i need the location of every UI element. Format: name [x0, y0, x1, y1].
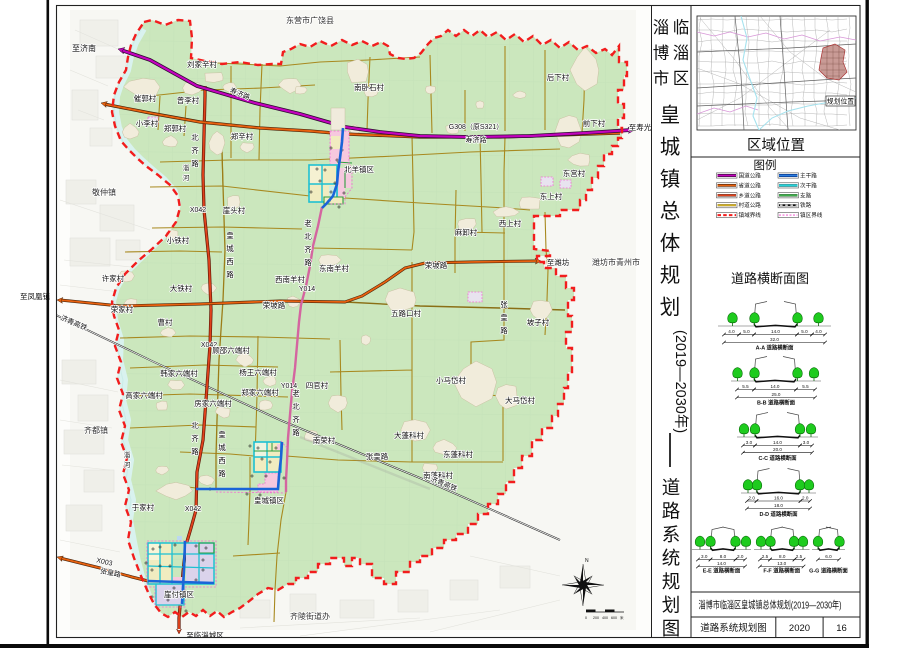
- svg-text:东宫村: 东宫村: [563, 168, 586, 178]
- svg-text:城: 城: [218, 443, 226, 452]
- svg-text:荣坡路: 荣坡路: [425, 260, 448, 270]
- svg-text:200: 200: [593, 616, 599, 620]
- svg-text:寿济路: 寿济路: [466, 135, 487, 144]
- svg-text:2.5: 2.5: [796, 554, 803, 559]
- svg-text:主干路: 主干路: [800, 172, 817, 180]
- svg-text:5.0: 5.0: [743, 329, 750, 334]
- svg-text:许家村: 许家村: [102, 273, 125, 283]
- svg-text:小李村: 小李村: [136, 118, 159, 128]
- svg-text:区: 区: [673, 70, 690, 88]
- svg-text:统: 统: [662, 548, 681, 569]
- svg-text:规: 规: [662, 571, 681, 592]
- svg-text:B-B 道路横断面: B-B 道路横断面: [757, 399, 796, 407]
- svg-text:荣家村: 荣家村: [111, 304, 134, 314]
- svg-text:路: 路: [662, 501, 681, 522]
- svg-text:齐: 齐: [292, 414, 300, 424]
- svg-text:郑郭村: 郑郭村: [164, 123, 187, 133]
- svg-text:Y014: Y014: [299, 286, 315, 293]
- svg-text:3.0: 3.0: [803, 440, 810, 445]
- svg-text:韩家六端村: 韩家六端村: [160, 368, 198, 378]
- svg-text:省道公路: 省道公路: [739, 181, 762, 189]
- svg-text:东蓬科村: 东蓬科村: [443, 449, 473, 459]
- svg-text:道: 道: [662, 477, 681, 498]
- svg-text:400: 400: [602, 616, 608, 620]
- svg-text:至潍坊: 至潍坊: [547, 257, 570, 267]
- svg-text:皇: 皇: [226, 230, 234, 240]
- svg-text:城: 城: [660, 136, 681, 159]
- svg-text:路: 路: [304, 257, 312, 267]
- svg-text:西南羊村: 西南羊村: [275, 274, 305, 284]
- svg-text:皇: 皇: [660, 104, 681, 127]
- svg-text:3.0: 3.0: [701, 554, 708, 559]
- svg-text:北: 北: [191, 421, 199, 430]
- svg-text:西: 西: [226, 257, 234, 266]
- svg-text:路: 路: [500, 325, 508, 335]
- svg-text:4.0: 4.0: [728, 329, 735, 334]
- svg-text:五路口村: 五路口村: [391, 308, 421, 318]
- svg-text:村道公路: 村道公路: [739, 201, 762, 209]
- svg-text:米: 米: [620, 615, 624, 620]
- svg-text:F-F 道路横断面: F-F 道路横断面: [763, 567, 800, 575]
- svg-text:顾邵六端村: 顾邵六端村: [212, 345, 250, 355]
- svg-text:河: 河: [124, 461, 131, 469]
- svg-text:规划位置: 规划位置: [827, 97, 854, 106]
- svg-text:图例: 图例: [754, 158, 777, 172]
- svg-text:皇: 皇: [218, 429, 226, 439]
- svg-text:齐陵街道办: 齐陵街道办: [290, 611, 330, 621]
- svg-text:系: 系: [662, 524, 681, 545]
- svg-text:崖付镇区: 崖付镇区: [164, 589, 194, 599]
- svg-text:区域位置: 区域位置: [747, 137, 805, 154]
- svg-text:南荣村: 南荣村: [313, 435, 336, 445]
- svg-text:大铁村: 大铁村: [170, 283, 193, 293]
- svg-text:18.0: 18.0: [774, 503, 783, 508]
- svg-text:坡子村: 坡子村: [527, 317, 550, 327]
- svg-text:G-G 道路横断面: G-G 道路横断面: [809, 567, 848, 575]
- svg-text:荣坡路: 荣坡路: [263, 300, 286, 310]
- svg-text:3.0: 3.0: [746, 440, 753, 445]
- svg-text:2.5: 2.5: [762, 554, 769, 559]
- svg-text:2020: 2020: [789, 623, 810, 634]
- svg-text:至济南: 至济南: [72, 43, 96, 53]
- svg-text:淄: 淄: [183, 163, 190, 172]
- svg-text:25.0: 25.0: [772, 392, 781, 397]
- svg-text:后下村: 后下村: [547, 72, 570, 82]
- svg-text:路: 路: [292, 427, 300, 437]
- svg-text:临: 临: [673, 18, 690, 37]
- svg-text:北: 北: [191, 133, 199, 142]
- svg-text:6.0: 6.0: [825, 554, 832, 559]
- svg-text:路: 路: [218, 468, 226, 478]
- svg-text:小马岱村: 小马岱村: [436, 375, 466, 385]
- svg-text:13.0: 13.0: [777, 561, 786, 566]
- svg-text:X042: X042: [185, 506, 201, 513]
- svg-text:刘家辛村: 刘家辛村: [187, 59, 217, 69]
- svg-text:高家六端村: 高家六端村: [125, 390, 163, 400]
- svg-text:14.0: 14.0: [771, 384, 780, 389]
- svg-text:规: 规: [660, 264, 681, 287]
- svg-text:北羊镇区: 北羊镇区: [344, 164, 374, 174]
- svg-text:西: 西: [218, 456, 226, 465]
- svg-text:老: 老: [292, 388, 300, 398]
- svg-text:G308（原S321）: G308（原S321）: [449, 123, 503, 131]
- svg-text:博: 博: [653, 44, 670, 63]
- svg-text:杨王六端村: 杨王六端村: [239, 367, 277, 377]
- svg-text:潍坊市青州市: 潍坊市青州市: [592, 257, 640, 267]
- svg-text:E-E 道路横断面: E-E 道路横断面: [703, 567, 741, 575]
- svg-text:20.0: 20.0: [773, 447, 782, 452]
- svg-text:市: 市: [653, 69, 670, 88]
- svg-text:皇: 皇: [500, 312, 508, 322]
- svg-text:路: 路: [226, 269, 234, 279]
- svg-text:曹村: 曹村: [158, 317, 173, 327]
- svg-text:14.0: 14.0: [771, 329, 780, 334]
- svg-text:城: 城: [226, 244, 234, 253]
- svg-text:划: 划: [662, 595, 681, 616]
- svg-text:齐: 齐: [304, 244, 312, 254]
- svg-text:8.0: 8.0: [720, 554, 727, 559]
- svg-text:房家六端村: 房家六端村: [194, 398, 232, 408]
- svg-text:600: 600: [611, 616, 617, 620]
- svg-text:大马岱村: 大马岱村: [505, 395, 535, 405]
- svg-text:崖头村: 崖头村: [223, 205, 246, 215]
- svg-text:镇区界线: 镇区界线: [800, 211, 823, 219]
- svg-text:小铁村: 小铁村: [167, 235, 190, 245]
- svg-text:四官村: 四官村: [306, 380, 329, 390]
- svg-text:张: 张: [500, 300, 508, 309]
- svg-text:北: 北: [292, 402, 300, 411]
- svg-text:镇: 镇: [660, 168, 681, 191]
- svg-text:4.0: 4.0: [815, 329, 822, 334]
- svg-text:32.0: 32.0: [770, 337, 779, 342]
- svg-text:麻卸村: 麻卸村: [455, 227, 478, 237]
- svg-text:西上村: 西上村: [499, 218, 522, 228]
- svg-text:郑辛村: 郑辛村: [231, 131, 254, 141]
- svg-text:东上村: 东上村: [540, 191, 563, 201]
- svg-text:5.0: 5.0: [801, 329, 808, 334]
- svg-text:8.0: 8.0: [779, 554, 786, 559]
- svg-text:前下村: 前下村: [583, 118, 606, 128]
- svg-text:乡道公路: 乡道公路: [739, 191, 762, 199]
- svg-text:东营市广饶县: 东营市广饶县: [286, 15, 334, 25]
- svg-text:图: 图: [662, 618, 681, 639]
- svg-text:14.0: 14.0: [773, 440, 782, 445]
- svg-text:D-D 道路横断面: D-D 道路横断面: [759, 510, 798, 518]
- svg-text:淄: 淄: [673, 44, 690, 63]
- svg-text:次干路: 次干路: [800, 181, 817, 189]
- svg-text:至凤凰镇: 至凤凰镇: [20, 291, 50, 301]
- svg-text:南卧石村: 南卧石村: [354, 82, 384, 92]
- svg-text:道路横断面图: 道路横断面图: [731, 271, 809, 286]
- svg-text:齐都镇: 齐都镇: [84, 425, 108, 435]
- svg-text:路: 路: [191, 158, 199, 168]
- svg-text:东南羊村: 东南羊村: [319, 263, 349, 273]
- svg-text:C-C 道路横断面: C-C 道路横断面: [758, 454, 797, 462]
- svg-text:催郭村: 催郭村: [134, 93, 157, 103]
- svg-text:至寿光: 至寿光: [629, 122, 652, 132]
- svg-text:0: 0: [585, 616, 587, 620]
- svg-text:齐: 齐: [191, 145, 199, 155]
- svg-text:曾李村: 曾李村: [177, 95, 200, 105]
- svg-text:5.5: 5.5: [742, 384, 749, 389]
- svg-text:老: 老: [304, 218, 312, 228]
- svg-text:划: 划: [660, 296, 681, 319]
- svg-text:5.5: 5.5: [802, 384, 809, 389]
- svg-text:齐: 齐: [191, 433, 199, 443]
- svg-text:铁路: 铁路: [800, 201, 812, 209]
- svg-text:A-A 道路横断面: A-A 道路横断面: [756, 344, 794, 352]
- svg-text:淄: 淄: [124, 450, 131, 459]
- svg-text:于家村: 于家村: [132, 502, 155, 512]
- svg-text:16.0: 16.0: [774, 495, 783, 500]
- svg-text:2.0: 2.0: [802, 495, 809, 500]
- svg-text:国道公路: 国道公路: [739, 172, 762, 180]
- svg-text:皇城镇区: 皇城镇区: [254, 495, 284, 505]
- svg-text:敬仲镇: 敬仲镇: [92, 187, 116, 197]
- svg-text:郑家六端村: 郑家六端村: [241, 387, 279, 397]
- svg-text:淄博市临淄区皇城镇总体规划(2019—2030年): 淄博市临淄区皇城镇总体规划(2019—2030年): [699, 599, 842, 612]
- svg-text:淄: 淄: [653, 18, 670, 37]
- svg-text:镇域界线: 镇域界线: [739, 211, 762, 219]
- svg-text:北: 北: [304, 232, 312, 241]
- svg-text:路: 路: [191, 446, 199, 456]
- svg-text:14.0: 14.0: [717, 561, 726, 566]
- svg-text:河: 河: [183, 174, 190, 182]
- svg-text:16: 16: [836, 623, 847, 634]
- svg-text:总: 总: [660, 200, 681, 223]
- svg-text:支路: 支路: [800, 191, 812, 199]
- svg-text:2.0: 2.0: [749, 495, 756, 500]
- svg-text:张皇路: 张皇路: [366, 451, 389, 461]
- svg-text:X042: X042: [190, 207, 206, 214]
- svg-text:体: 体: [660, 232, 681, 255]
- svg-text:N: N: [585, 558, 589, 564]
- svg-text:3.0: 3.0: [737, 554, 744, 559]
- svg-text:道路系统规划图: 道路系统规划图: [700, 622, 767, 634]
- svg-text:大蓬科村: 大蓬科村: [394, 430, 424, 440]
- svg-text:(2019—2030年): (2019—2030年): [672, 330, 689, 433]
